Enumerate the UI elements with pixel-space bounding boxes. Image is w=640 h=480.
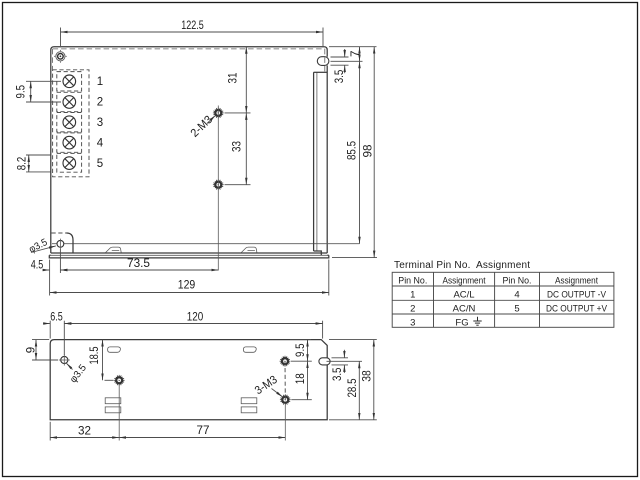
svg-text:8.2: 8.2 <box>16 157 28 171</box>
svg-text:Terminal Pin No. Assignment: Terminal Pin No. Assignment <box>394 260 530 271</box>
svg-text:Assignment: Assignment <box>443 275 486 286</box>
svg-text:4: 4 <box>514 290 519 301</box>
svg-text:1: 1 <box>97 76 103 88</box>
svg-text:73.5: 73.5 <box>127 258 150 270</box>
svg-text:33: 33 <box>232 141 244 152</box>
svg-text:4: 4 <box>97 137 104 149</box>
svg-text:5: 5 <box>514 304 519 315</box>
svg-text:129: 129 <box>178 280 196 292</box>
svg-text:Pin No.: Pin No. <box>398 275 427 286</box>
svg-text:6.5: 6.5 <box>50 312 63 324</box>
svg-text:122.5: 122.5 <box>181 20 204 32</box>
svg-text:5: 5 <box>97 158 103 170</box>
svg-text:77: 77 <box>197 425 210 437</box>
svg-text:18: 18 <box>295 373 307 384</box>
svg-text:2: 2 <box>410 304 415 315</box>
svg-text:9: 9 <box>26 347 38 353</box>
svg-text:4.5: 4.5 <box>31 260 44 272</box>
svg-text:32: 32 <box>78 425 91 437</box>
svg-text:18.5: 18.5 <box>89 347 101 365</box>
svg-text:1: 1 <box>410 290 415 301</box>
svg-text:9.5: 9.5 <box>295 343 307 357</box>
svg-text:FG: FG <box>455 317 468 328</box>
svg-text:DC OUTPUT -V: DC OUTPUT -V <box>547 290 607 301</box>
svg-text:DC OUTPUT +V: DC OUTPUT +V <box>546 304 608 315</box>
svg-text:85.5: 85.5 <box>347 141 359 160</box>
svg-text:28.5: 28.5 <box>347 379 359 398</box>
svg-text:AC/N: AC/N <box>453 304 476 315</box>
svg-text:Assignment: Assignment <box>555 275 598 286</box>
svg-text:98: 98 <box>363 145 375 158</box>
svg-text:3.5: 3.5 <box>334 70 346 84</box>
svg-text:9.5: 9.5 <box>16 85 28 99</box>
svg-text:AC/L: AC/L <box>453 290 474 301</box>
svg-text:120: 120 <box>187 312 204 324</box>
svg-text:31: 31 <box>228 73 240 84</box>
svg-text:38: 38 <box>361 370 373 382</box>
svg-text:3.5: 3.5 <box>332 368 344 382</box>
svg-text:2: 2 <box>97 97 103 109</box>
svg-text:7: 7 <box>350 51 362 57</box>
svg-text:3: 3 <box>410 317 415 328</box>
svg-text:Pin No.: Pin No. <box>503 275 532 286</box>
svg-text:3: 3 <box>97 117 103 129</box>
